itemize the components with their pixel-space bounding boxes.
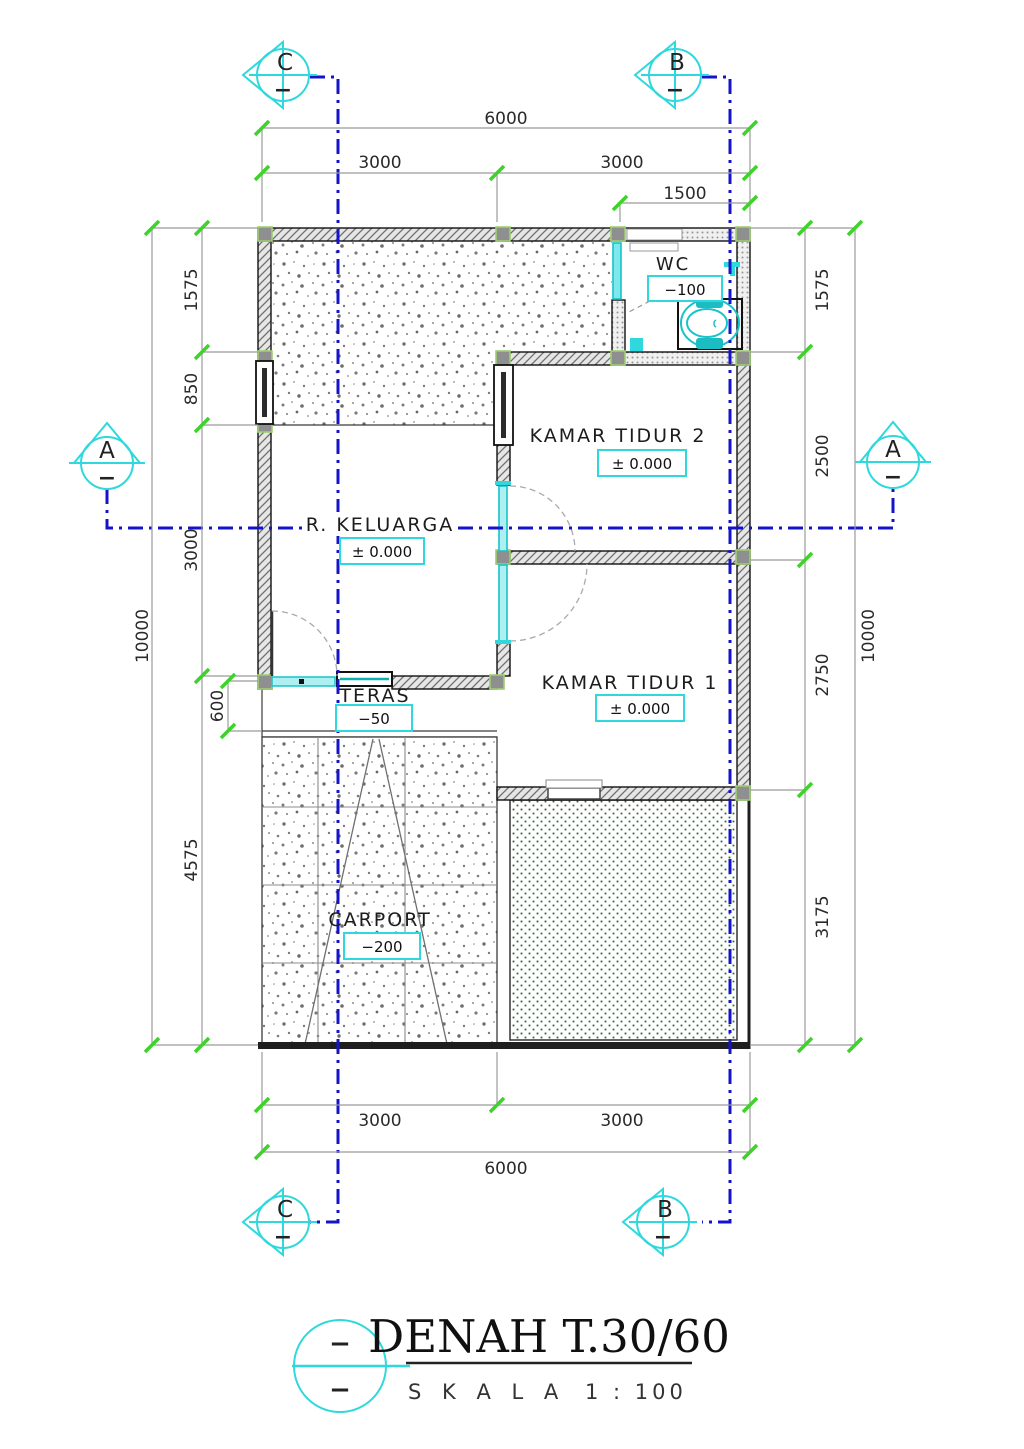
drawing-title: DENAH T.30/60 [368, 1310, 730, 1363]
keluarga-label: R. KELUARGA [306, 514, 455, 536]
dim-left-total: 10000 [133, 609, 153, 663]
marker-top-c-dash: − [274, 78, 292, 103]
kt1-door-swing [510, 564, 587, 641]
dim-right-2: 2500 [813, 434, 833, 477]
dim-bottom-right: 3000 [600, 1111, 643, 1131]
marker-top-b-dash: − [666, 78, 684, 103]
floor-plan-page: WC −100 KAMAR TIDUR 2 ± 0.000 R. KELUARG… [0, 0, 1024, 1449]
marker-top-c: C − [243, 42, 317, 108]
title-bubble-dash-bottom: − [329, 1375, 351, 1405]
title-block: − − DENAH T.30/60 S K A L A 1 : 100 [292, 1310, 730, 1412]
dim-top-left: 3000 [358, 153, 401, 173]
wall-wc-left [612, 300, 625, 352]
marker-top-b-letter: B [669, 50, 685, 76]
kt2-door-swing [510, 486, 575, 551]
dim-left-1: 1575 [182, 268, 202, 311]
wall-w1-left [497, 352, 612, 365]
wall-w2 [510, 551, 750, 564]
kt2-door-leaf [499, 486, 507, 551]
teras-label: TERAS [338, 685, 410, 707]
dim-right-1: 1575 [813, 268, 833, 311]
scale-value: 1 : 100 [585, 1380, 687, 1404]
marker-bottom-b-dash: − [654, 1225, 672, 1250]
wall-right [737, 352, 750, 790]
keluarga-level: ± 0.000 [352, 543, 412, 561]
marker-left-a: A − [69, 423, 145, 491]
dim-left-5: 4575 [182, 838, 202, 881]
marker-bottom-c: C − [243, 1189, 317, 1255]
carport-label: CARPORT [328, 909, 431, 931]
marker-right-a: A − [855, 422, 931, 490]
wall-left [258, 241, 271, 676]
teras-level: −50 [358, 710, 390, 728]
dim-top-total: 6000 [484, 109, 527, 129]
marker-left-a-dash: − [98, 466, 116, 491]
wall-top-left [258, 228, 620, 241]
kt1-door-leaf [499, 565, 507, 641]
dim-bottom-total: 6000 [484, 1159, 527, 1179]
marker-bottom-c-letter: C [277, 1197, 293, 1223]
carport-level: −200 [361, 938, 402, 956]
wc-label: WC [656, 254, 690, 275]
dim-left-3: 3000 [182, 528, 202, 571]
dim-left-4: 600 [208, 690, 228, 722]
floor-drain-icon [630, 338, 643, 351]
wall-right-wc [737, 241, 750, 352]
marker-right-a-dash: − [884, 465, 902, 490]
marker-bottom-b: B − [623, 1189, 697, 1255]
kt1-level: ± 0.000 [610, 700, 670, 718]
wc-level: −100 [664, 281, 705, 299]
marker-bottom-c-dash: − [274, 1225, 292, 1250]
dim-left-2: 850 [182, 373, 202, 405]
carport-paving [262, 737, 497, 1045]
wall-kt1-bottom [497, 787, 750, 800]
scale-label: S K A L A [408, 1380, 565, 1404]
window-kt1 [548, 788, 600, 799]
dim-bottom-left: 3000 [358, 1111, 401, 1131]
section-line-b [702, 77, 730, 1222]
floor-plan-canvas: WC −100 KAMAR TIDUR 2 ± 0.000 R. KELUARG… [0, 0, 1024, 1449]
dim-top-wc: 1500 [663, 184, 706, 204]
marker-right-a-letter: A [885, 437, 901, 463]
dim-right-4: 3175 [813, 895, 833, 938]
kt2-level: ± 0.000 [612, 455, 672, 473]
dim-top-right: 3000 [600, 153, 643, 173]
wall-central-c [497, 642, 510, 676]
dim-right-3: 2750 [813, 653, 833, 696]
front-door-swing [272, 611, 337, 676]
wall-central-a [497, 445, 510, 485]
kt2-label: KAMAR TIDUR 2 [530, 425, 707, 447]
marker-top-c-letter: C [277, 50, 293, 76]
marker-top-b: B − [635, 42, 709, 108]
garden-area [510, 800, 737, 1040]
kt1-label: KAMAR TIDUR 1 [542, 672, 719, 694]
marker-bottom-b-letter: B [657, 1197, 673, 1223]
marker-left-a-letter: A [99, 438, 115, 464]
title-bubble-dash-top: − [329, 1329, 351, 1359]
dim-right-total: 10000 [859, 609, 879, 663]
wc-door-leaf [613, 243, 621, 299]
